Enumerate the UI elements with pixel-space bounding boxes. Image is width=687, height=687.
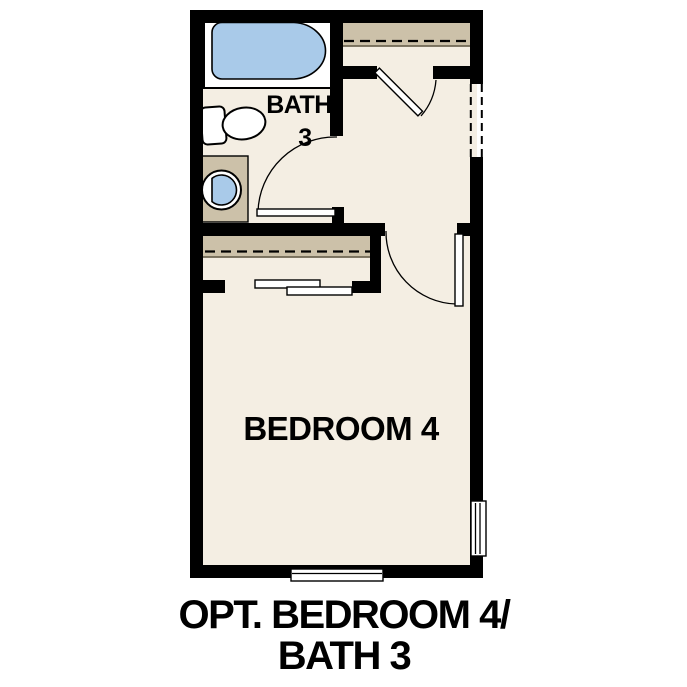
bedroom-label: BEDROOM 4 [243, 410, 440, 447]
closet-shelf [340, 21, 474, 46]
caption-line2: BATH 3 [278, 634, 411, 678]
caption-line1: OPT. BEDROOM 4/ [179, 593, 511, 637]
bath-label-line2: 3 [298, 124, 311, 152]
bathtub [204, 22, 333, 88]
right-wall-window [471, 501, 486, 556]
bath-label-line1: BATH [266, 91, 332, 119]
closet-door-wall-right [433, 66, 471, 79]
closet-front-corner [352, 281, 371, 293]
sink-vanity [201, 156, 248, 222]
closet-door-wall-left [343, 66, 377, 79]
closet-jamb [370, 236, 381, 293]
bottom-wall-window [291, 569, 383, 581]
closet-front-stub [190, 280, 225, 293]
bedroom-closet-shelf [203, 236, 371, 257]
middle-wall [190, 223, 385, 236]
floorplan-svg: BATH 3 BEDROOM 4 OPT. BEDROOM 4/ BATH 3 [0, 0, 687, 687]
bath-right-wall [330, 23, 343, 136]
floorplan-page: BATH 3 BEDROOM 4 OPT. BEDROOM 4/ BATH 3 [0, 0, 687, 687]
